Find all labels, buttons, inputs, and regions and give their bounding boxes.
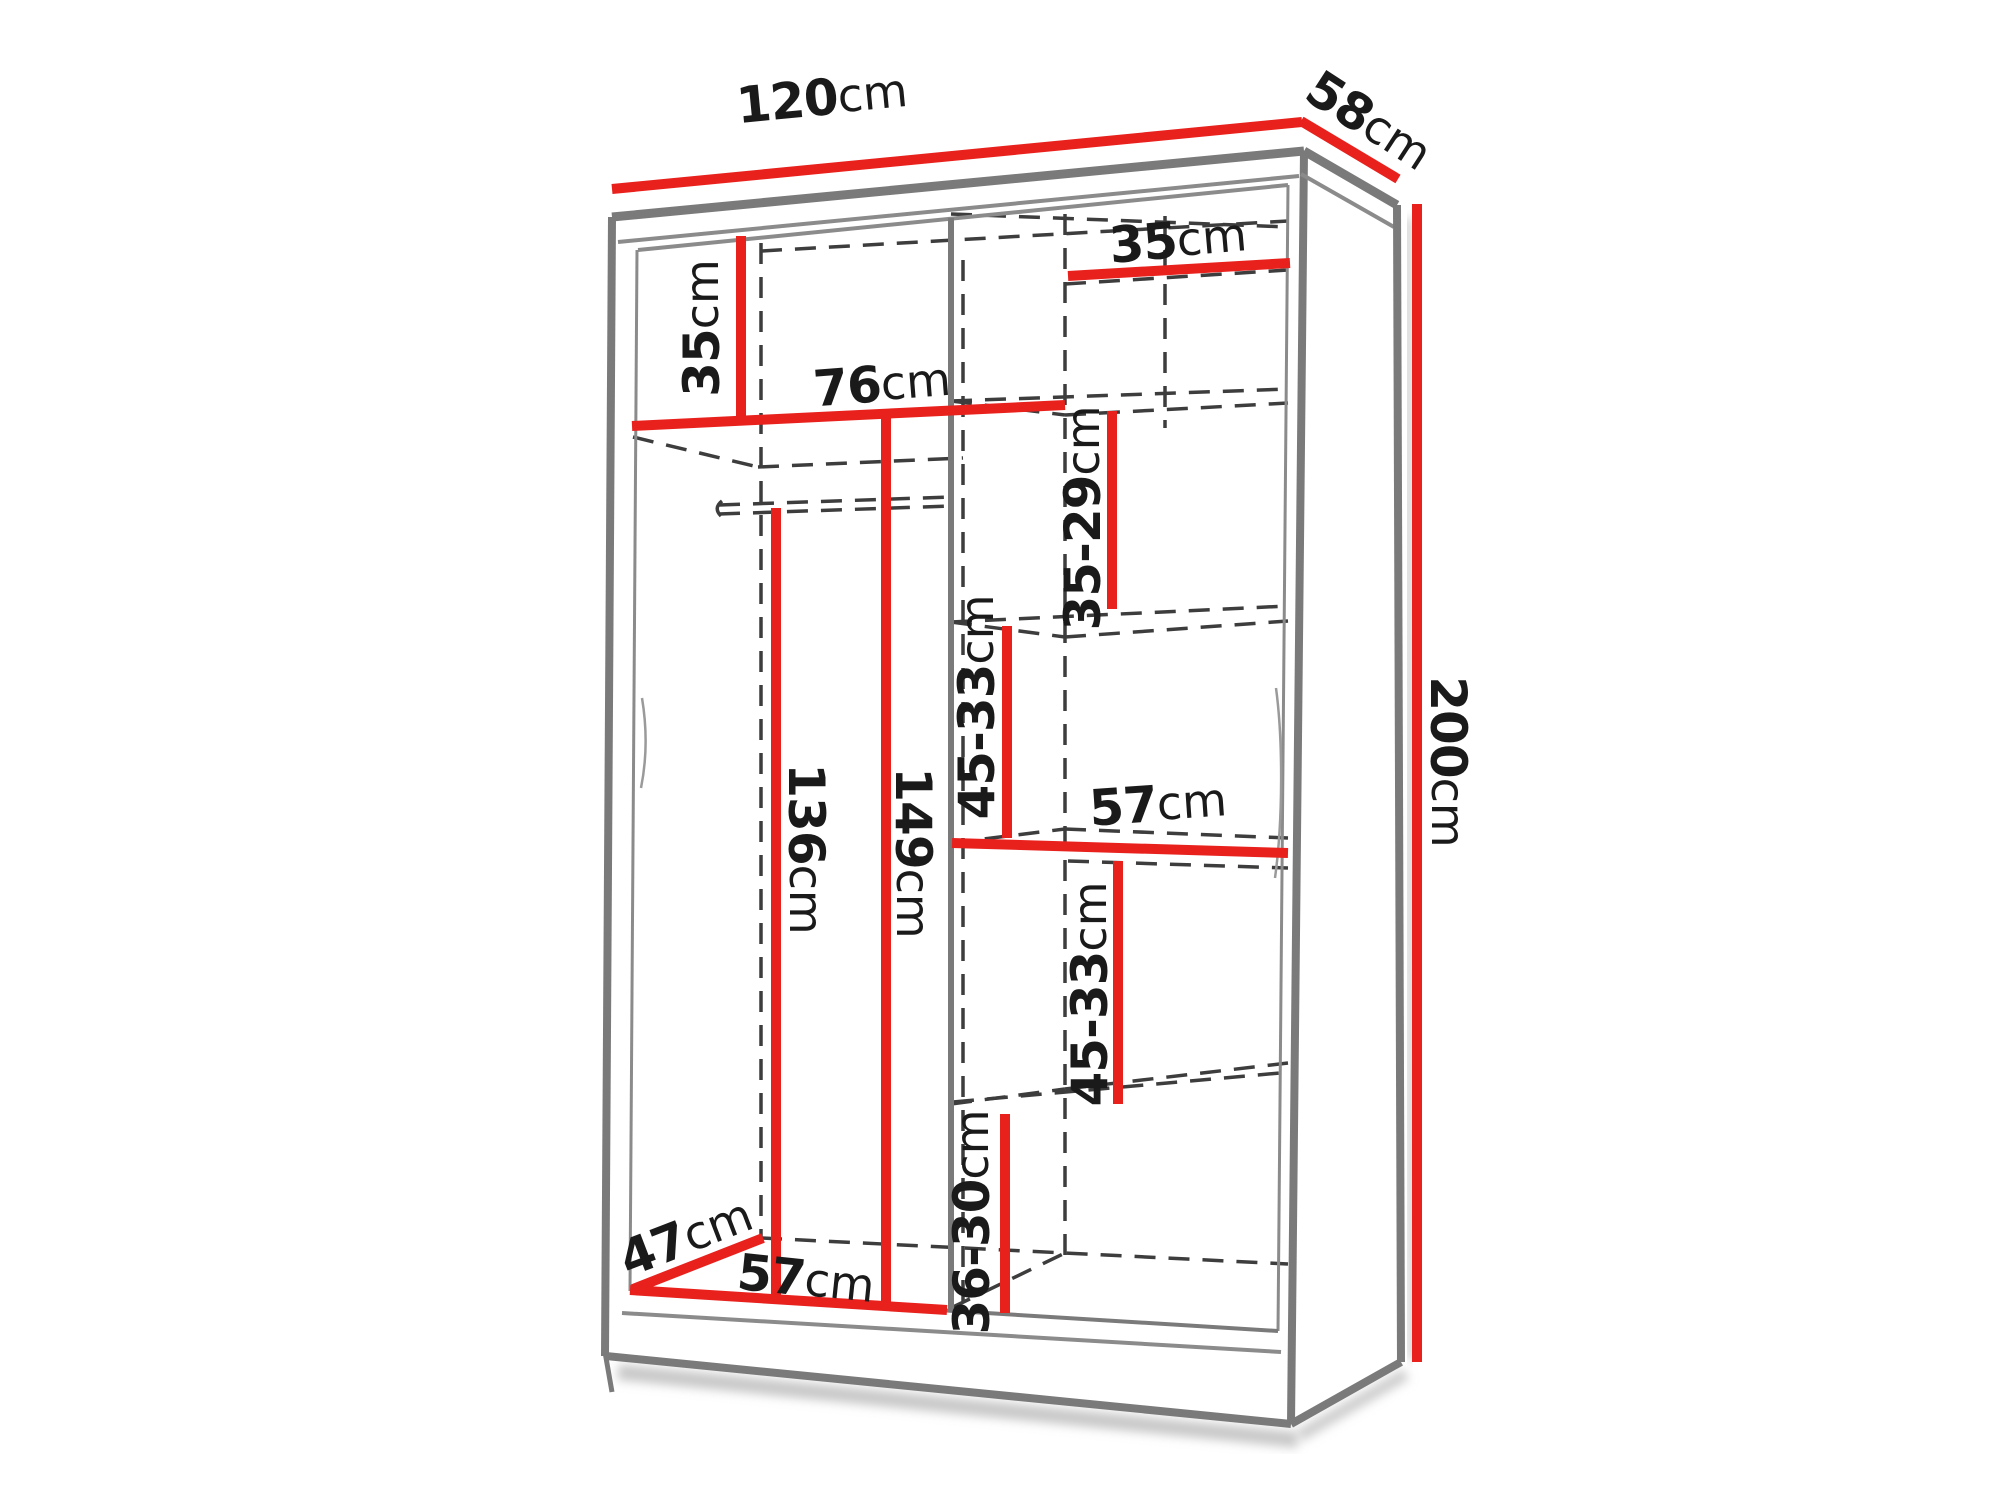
dim-unit: cm (675, 259, 729, 329)
dim-label-gap-36-30: 36-30cm (943, 1109, 1001, 1334)
dim-unit: cm (1155, 772, 1229, 831)
dim-unit: cm (1421, 778, 1475, 848)
dim-unit: cm (1056, 405, 1110, 475)
dim-value: 45-33 (948, 665, 1006, 820)
dim-label-gap-45-33-upper: 45-33cm (948, 594, 1006, 819)
dim-unit: cm (1174, 207, 1249, 267)
side-shadow (1408, 218, 1412, 1360)
dim-value: 35 (1107, 211, 1179, 275)
dim-unit: cm (950, 594, 1004, 664)
dim-label-top-left-35: 35cm (673, 259, 731, 397)
dim-label-hanging-149: 149cm (884, 767, 942, 938)
dim-label-gap-35-29: 35-29cm (1054, 405, 1112, 630)
wardrobe-dimension-diagram: 120cm 58cm 200cm 35cm 35cm 76cm 35-29cm … (0, 0, 2000, 1500)
dim-unit: cm (835, 63, 910, 123)
dim-value: 45-33 (1061, 952, 1119, 1107)
dim-value: 57 (734, 1243, 807, 1308)
dim-label-height-200: 200cm (1419, 676, 1477, 847)
dim-unit: cm (779, 865, 833, 935)
diagram-canvas: 120cm 58cm 200cm 35cm 35cm 76cm 35-29cm … (0, 0, 2000, 1500)
dim-unit: cm (802, 1252, 877, 1313)
side-face (1291, 151, 1401, 1424)
dim-value: 57 (1087, 775, 1158, 838)
dim-value: 76 (811, 355, 883, 418)
dim-value: 149 (884, 767, 942, 868)
dim-value: 35 (673, 329, 731, 397)
dim-value: 36-30 (943, 1180, 1001, 1335)
dim-label-width-120: 120cm (734, 61, 910, 135)
back-right-edge (1397, 205, 1401, 1362)
dim-label-hanging-136: 136cm (777, 763, 835, 934)
dim-value: 136 (777, 763, 835, 864)
dim-value: 35-29 (1054, 476, 1112, 631)
dim-label-gap-45-33-lower: 45-33cm (1061, 881, 1119, 1106)
dim-value: 120 (734, 68, 840, 135)
dim-unit: cm (1063, 881, 1117, 951)
dim-unit: cm (886, 869, 940, 939)
dim-unit: cm (945, 1109, 999, 1179)
dim-value: 200 (1419, 676, 1477, 777)
dim-unit: cm (879, 352, 953, 411)
